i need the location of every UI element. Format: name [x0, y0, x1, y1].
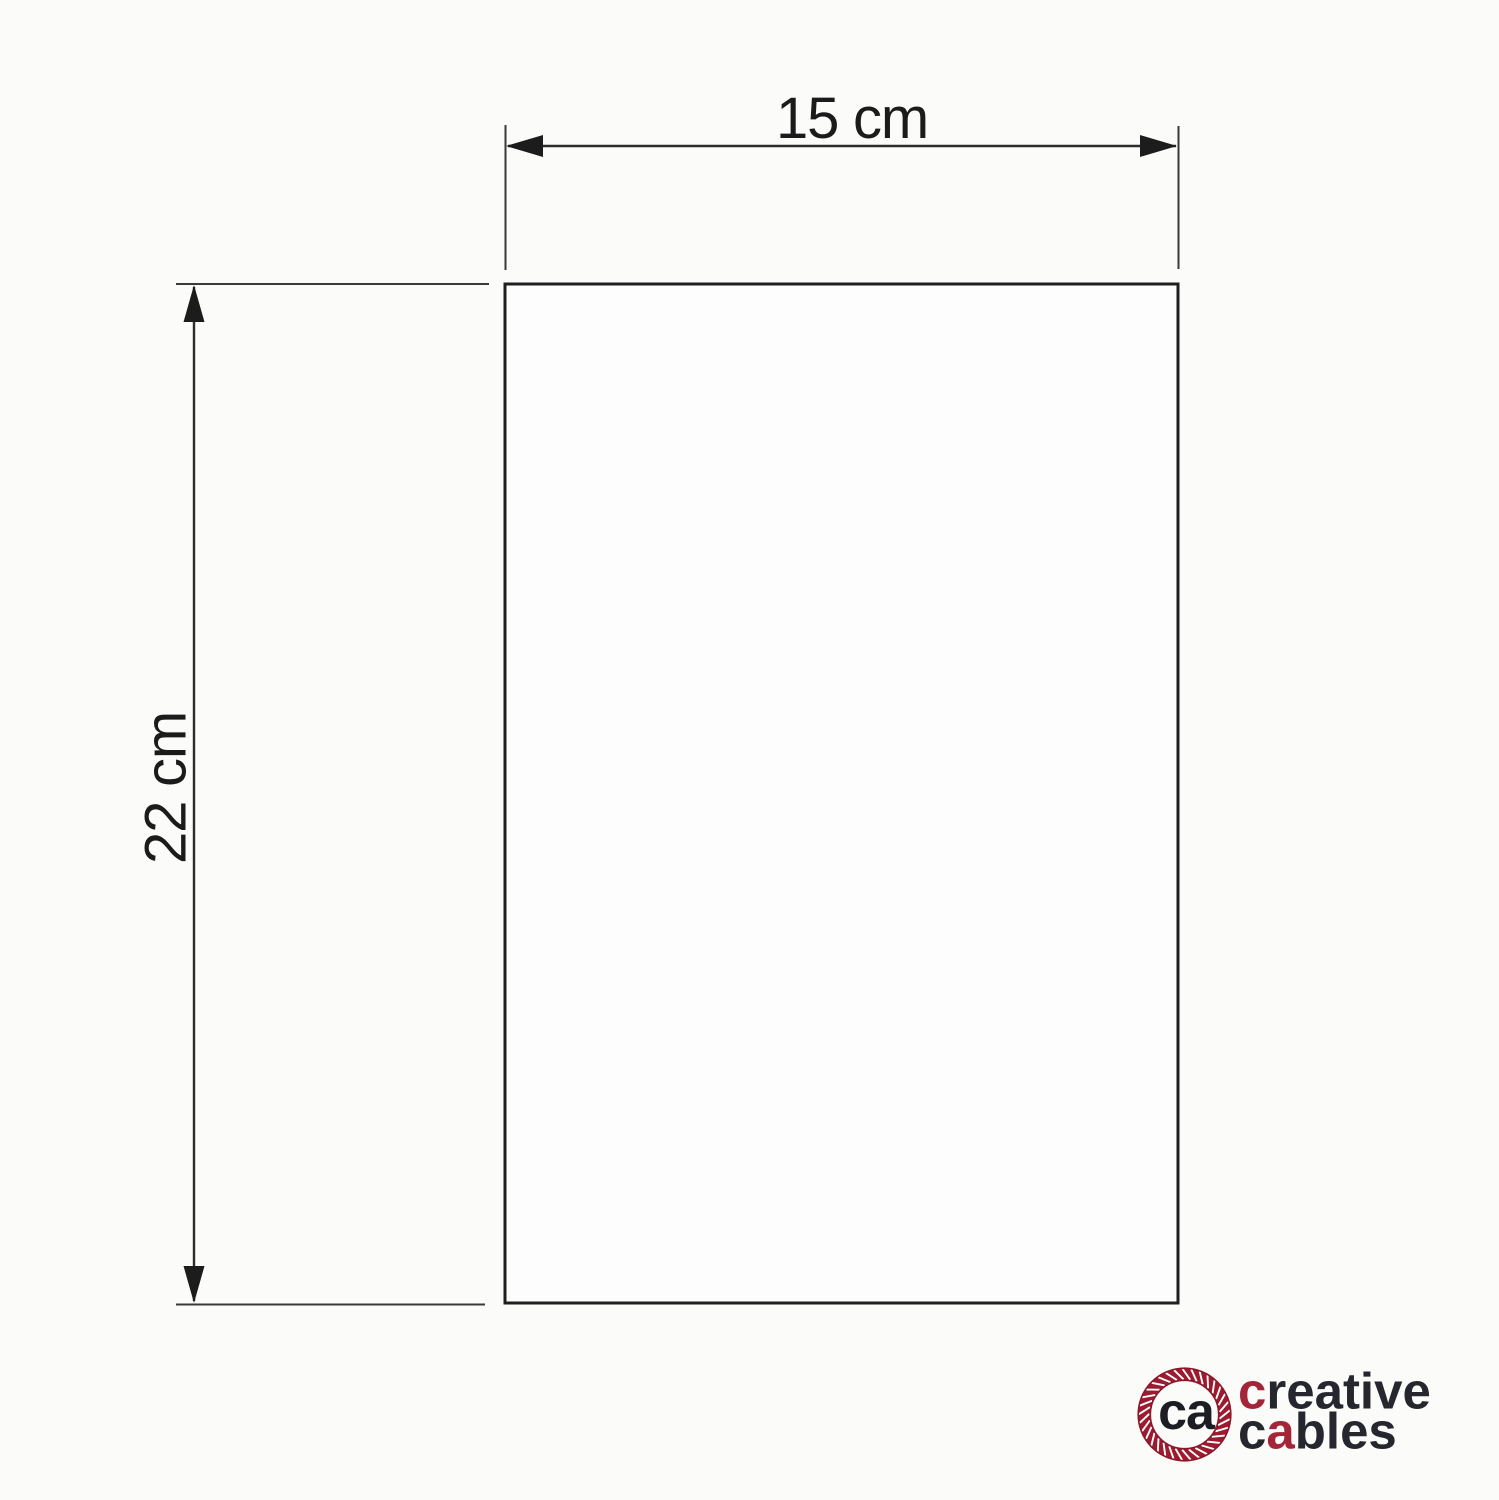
- svg-text:cables: cables: [1238, 1403, 1397, 1460]
- svg-text:22 cm: 22 cm: [134, 712, 199, 864]
- svg-text:15 cm: 15 cm: [776, 86, 928, 151]
- svg-text:ca: ca: [1158, 1383, 1216, 1441]
